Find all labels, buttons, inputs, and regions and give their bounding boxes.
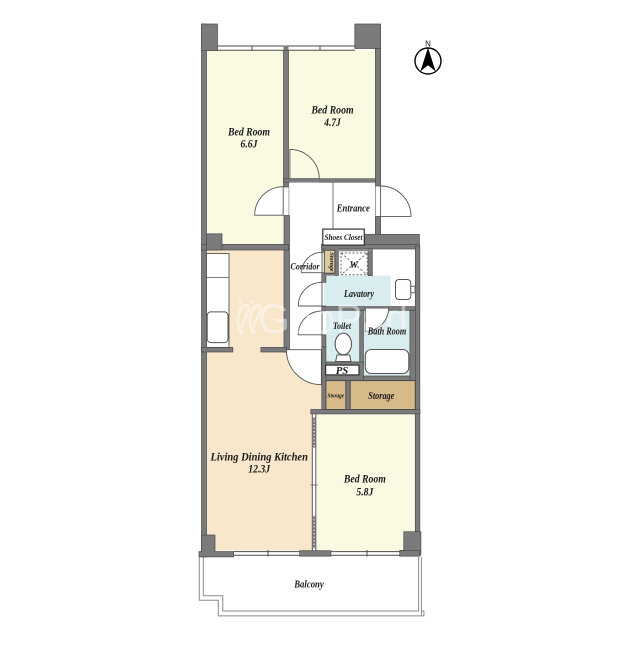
svg-text:Corridor: Corridor xyxy=(291,263,320,273)
svg-text:4.7J: 4.7J xyxy=(323,117,341,129)
svg-text:Entrance: Entrance xyxy=(336,204,370,215)
svg-text:Bath Room: Bath Room xyxy=(367,327,406,338)
svg-text:N: N xyxy=(425,40,431,49)
svg-text:12.3J: 12.3J xyxy=(248,464,271,476)
svg-text:Storage: Storage xyxy=(328,393,345,400)
svg-text:6.6J: 6.6J xyxy=(241,139,259,151)
svg-text:PS: PS xyxy=(336,366,349,377)
svg-text:Toilet: Toilet xyxy=(333,322,351,332)
svg-text:Balcony: Balcony xyxy=(293,580,324,591)
svg-text:Living Dining Kitchen: Living Dining Kitchen xyxy=(210,452,308,464)
svg-text:Lavatory: Lavatory xyxy=(343,289,374,300)
svg-text:W: W xyxy=(350,261,359,271)
svg-text:Storage: Storage xyxy=(328,253,334,272)
svg-text:Bed Room: Bed Room xyxy=(227,127,270,139)
svg-text:Storage: Storage xyxy=(368,391,394,402)
svg-text:5.8J: 5.8J xyxy=(356,487,374,499)
svg-text:Bed Room: Bed Room xyxy=(310,105,353,117)
svg-text:Bed Room: Bed Room xyxy=(343,474,386,486)
svg-text:Shoes Closet: Shoes Closet xyxy=(325,233,364,242)
